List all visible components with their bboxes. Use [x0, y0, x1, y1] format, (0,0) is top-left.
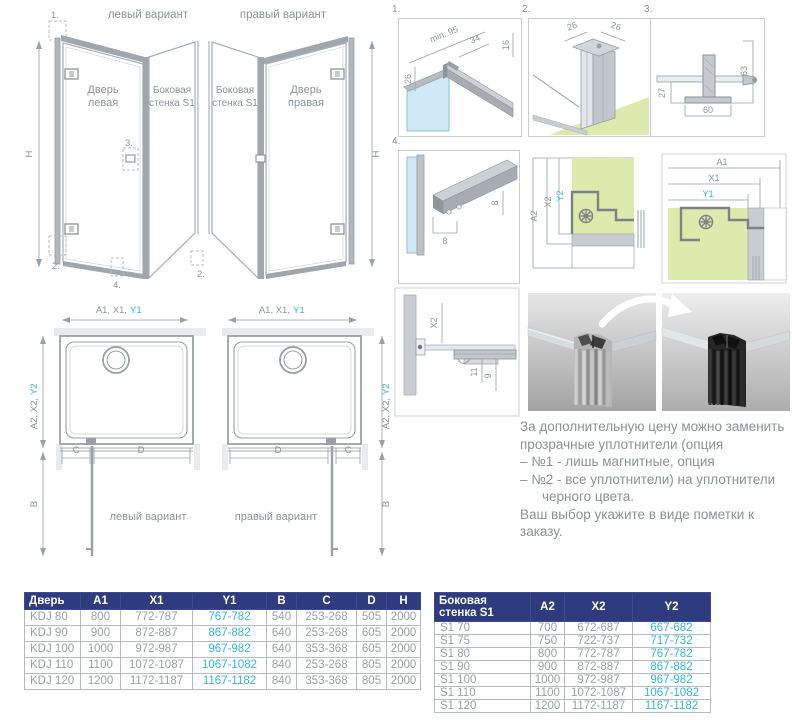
note-line: прозрачные уплотнители (опция — [520, 436, 792, 454]
table-cell: S1 90 — [435, 661, 531, 674]
table-cell: 2000 — [387, 674, 421, 690]
table-row: S1 90900872-887867-882 — [435, 661, 711, 674]
table-cell: 800 — [81, 610, 121, 626]
marker-3-label: 3. — [125, 138, 133, 149]
side-wall-label: стенка S1 — [212, 98, 258, 109]
table-cell: 840 — [267, 674, 297, 690]
table-cell: 867-882 — [633, 661, 711, 674]
table-cell: 253-268 — [297, 658, 357, 674]
table-cell: S1 80 — [435, 648, 531, 661]
table-cell: 1072-1087 — [565, 687, 633, 700]
dim-label: Y2 — [29, 383, 40, 395]
table-cell: KDJ 80 — [25, 610, 81, 626]
note-line: – №2 - все уплотнители) на уплотнители — [520, 471, 792, 489]
table-cell: 640 — [267, 626, 297, 642]
detail-1-number: 1. — [392, 4, 400, 15]
wall-table-header: Боковая стенка S1A2X2Y2 — [435, 593, 711, 622]
table-cell: 505 — [357, 610, 387, 626]
table-cell: 1100 — [81, 658, 121, 674]
dim-label: A1, X1, — [96, 305, 127, 316]
corner-detail-left: A2 X2 Y2 — [526, 152, 658, 285]
table-cell: 1172-1187 — [565, 700, 633, 713]
table-cell: 605 — [357, 626, 387, 642]
table-cell: 353-368 — [297, 642, 357, 658]
shower-tray — [60, 336, 193, 451]
elevation-right-variant: правый вариант Боковая стенка S1 Дверь п… — [200, 5, 385, 290]
table-cell: 540 — [267, 610, 297, 626]
seal-extrusion-streaks — [576, 349, 608, 405]
table-row: S1 80800772-787767-782 — [435, 648, 711, 661]
table-cell: 1172-1187 — [121, 674, 193, 690]
table-cell: KDJ 100 — [25, 642, 81, 658]
side-wall-label: Боковая — [153, 85, 191, 96]
detail-4-box: 8 8 — [398, 150, 520, 284]
table-cell: 1067-1082 — [193, 658, 267, 674]
dim-label: B — [29, 501, 40, 507]
table-row: S1 70700672-687667-682 — [435, 622, 711, 635]
column-header: B — [267, 593, 297, 610]
table-cell: 2000 — [387, 642, 421, 658]
table-cell: 967-982 — [193, 642, 267, 658]
dim-label: 8 — [490, 200, 500, 205]
table-cell: 722-737 — [565, 635, 633, 648]
dim-label: 27 — [657, 88, 667, 98]
replace-arrow-icon — [598, 290, 694, 330]
top-dimension: A1, X1, Y1 — [228, 305, 357, 323]
plan-left-variant: A1, X1, Y1 C D — [28, 298, 218, 563]
table-cell: 772-787 — [121, 610, 193, 626]
dim-label: X2 — [429, 317, 439, 328]
bracket-icon — [126, 155, 135, 162]
door-label: левая — [88, 97, 118, 109]
table-cell: S1 70 — [435, 622, 531, 635]
h-dimension: H — [369, 41, 382, 267]
detail-3-box: 63 27 60 — [650, 18, 765, 137]
adjustment-screw-icon — [700, 216, 713, 229]
side-wall-label: Боковая — [216, 85, 254, 96]
dim-label: 26 — [610, 20, 623, 33]
table-cell: 672-687 — [565, 622, 633, 635]
table-cell: KDJ 90 — [25, 626, 81, 642]
table-cell: 1167-1182 — [193, 674, 267, 690]
dim-label: 63 — [739, 66, 749, 76]
column-header: C — [297, 593, 357, 610]
side-dimensions: A2, X2, Y2 B — [379, 336, 392, 556]
dim-label: C — [345, 445, 352, 456]
table-cell: 1167-1182 — [633, 700, 711, 713]
adjustment-screw-icon — [580, 210, 593, 223]
detail-2-drawing: 26 26 — [529, 19, 651, 136]
table-cell: 972-987 — [565, 674, 633, 687]
dim-label: min. 95 — [428, 24, 459, 44]
door-label: правая — [288, 97, 324, 109]
table-cell: 1000 — [531, 674, 565, 687]
column-header: X2 — [565, 593, 633, 622]
elevation-right-title: правый вариант — [240, 9, 327, 21]
note-line: черного цвета. — [520, 488, 792, 506]
column-header: Боковая стенка S1 — [435, 593, 531, 622]
table-cell: 2000 — [387, 626, 421, 642]
door-pivot-icon — [326, 438, 336, 445]
note-line: За дополнительную цену можно заменить — [520, 418, 792, 436]
door-dimensions-table: ДверьA1X1Y1BCDH KDJ 80800772-787767-7825… — [24, 592, 421, 690]
table-cell: 867-882 — [193, 626, 267, 642]
detail-2-number: 2. — [522, 4, 530, 15]
table-cell: 700 — [531, 622, 565, 635]
marker-4-label: 4. — [113, 280, 121, 291]
table-cell: 805 — [357, 658, 387, 674]
corner-detail-right: A1 X1 Y1 — [660, 152, 788, 285]
table-row: S1 11011001072-10871067-1082 — [435, 687, 711, 700]
column-header: H — [387, 593, 421, 610]
detail-1-box: min. 95 34 16 26 — [398, 18, 522, 137]
detail-3-drawing: 63 27 60 — [651, 19, 764, 136]
table-cell: 967-982 — [633, 674, 711, 687]
table-cell: 1100 — [531, 687, 565, 700]
table-cell: 2000 — [387, 658, 421, 674]
dim-label: 8 — [442, 236, 447, 246]
column-header: Y2 — [633, 593, 711, 622]
door-table-body: KDJ 80800772-787767-782540253-2685052000… — [25, 610, 421, 690]
dim-label: Y1 — [293, 305, 305, 316]
dim-label: 26 — [566, 20, 579, 33]
door-pivot-icon — [86, 438, 96, 445]
right-door-drawing: Боковая стенка S1 Дверь правая — [209, 36, 354, 279]
column-header: X1 — [121, 593, 193, 610]
table-row: S1 75750722-737717-732 — [435, 635, 711, 648]
dim-label: X2 — [543, 196, 553, 207]
table-row: KDJ 90900872-887867-882640253-2686052000 — [25, 626, 421, 642]
dim-label: Y2 — [381, 383, 392, 395]
table-cell: 972-987 — [121, 642, 193, 658]
dim-label: A2 — [529, 210, 539, 221]
note-line: Ваш выбор укажите в виде пометки к заказ… — [520, 506, 792, 541]
column-header: A2 — [531, 593, 565, 622]
table-cell: 767-782 — [633, 648, 711, 661]
seal-extrusion-streaks — [710, 349, 742, 405]
table-cell: 1200 — [81, 674, 121, 690]
h-dimension: H — [24, 41, 42, 267]
table-cell: S1 100 — [435, 674, 531, 687]
side-wall-dimensions-table: Боковая стенка S1A2X2Y2 S1 70700672-6876… — [434, 592, 711, 713]
table-cell: S1 75 — [435, 635, 531, 648]
table-cell: 1072-1087 — [121, 658, 193, 674]
column-header: Y1 — [193, 593, 267, 610]
table-cell: 353-368 — [297, 674, 357, 690]
detail-3-number: 3. — [644, 4, 652, 15]
table-cell: 750 — [531, 635, 565, 648]
dim-label: D — [275, 445, 282, 456]
top-dimension: A1, X1, Y1 — [62, 305, 188, 323]
door-label: Дверь — [87, 84, 118, 96]
table-cell: 872-887 — [565, 661, 633, 674]
door-label: Дверь — [290, 84, 321, 96]
detail-1-drawing: min. 95 34 16 26 — [399, 19, 521, 136]
table-cell: 800 — [531, 648, 565, 661]
table-cell: 840 — [267, 658, 297, 674]
plan-right-variant: A1, X1, Y1 D C — [212, 298, 402, 563]
open-door — [332, 446, 338, 556]
dim-label: X1 — [708, 173, 719, 183]
side-dimensions: A2, X2, Y2 B — [29, 336, 46, 556]
detail-4-number: 4. — [392, 136, 400, 147]
marker-2-label: 2. — [52, 261, 60, 272]
wall-section-detail: X2 11 9 — [394, 287, 520, 417]
table-row: KDJ 12012001172-11871167-1182840353-3688… — [25, 674, 421, 690]
bracket-icon — [256, 155, 265, 162]
table-cell: 872-887 — [121, 626, 193, 642]
detail-4-drawing: 8 8 — [399, 151, 519, 283]
table-cell: 253-268 — [297, 626, 357, 642]
h-dim-label: H — [24, 150, 35, 157]
table-cell: 772-787 — [565, 648, 633, 661]
table-cell: 667-682 — [633, 622, 711, 635]
table-cell: 1200 — [531, 700, 565, 713]
dim-label: B — [381, 501, 392, 507]
dim-label: A2, X2, — [29, 398, 40, 429]
dim-label: D — [138, 445, 145, 456]
dim-label: A1, X1, — [259, 305, 290, 316]
table-cell: 605 — [357, 642, 387, 658]
dim-label: Y2 — [555, 190, 565, 201]
side-wall-label: стенка S1 — [149, 98, 195, 109]
dim-label: 11 — [469, 367, 479, 376]
shower-enclosure-spec-sheet: левый вариант H Дверь левая Боковая стен… — [0, 0, 792, 720]
table-cell: 1000 — [81, 642, 121, 658]
dim-label: 26 — [403, 74, 413, 84]
dim-label: C — [73, 445, 80, 456]
dim-label: A1 — [716, 157, 727, 167]
dim-label: 9 — [483, 373, 493, 378]
table-cell: S1 120 — [435, 700, 531, 713]
table-cell: KDJ 110 — [25, 658, 81, 674]
table-cell: 1067-1082 — [633, 687, 711, 700]
table-row: KDJ 80800772-787767-782540253-2685052000 — [25, 610, 421, 626]
plan-left-caption: левый вариант — [110, 511, 187, 523]
table-cell: 805 — [357, 674, 387, 690]
dim-label: Y1 — [702, 189, 713, 199]
dim-label: 16 — [501, 40, 511, 50]
table-cell: 717-732 — [633, 635, 711, 648]
elevation-left-title: левый вариант — [108, 9, 189, 21]
table-row: S1 12012001172-11871167-1182 — [435, 700, 711, 713]
table-cell: 2000 — [387, 610, 421, 626]
table-cell: 640 — [267, 642, 297, 658]
plan-right-caption: правый вариант — [235, 511, 317, 523]
table-cell: 900 — [81, 626, 121, 642]
table-row: KDJ 1001000972-987967-982640353-36860520… — [25, 642, 421, 658]
table-cell: KDJ 120 — [25, 674, 81, 690]
wall-table-body: S1 70700672-687667-682S1 75750722-737717… — [435, 622, 711, 713]
column-header: Дверь — [25, 593, 81, 610]
open-door — [86, 446, 92, 556]
elevation-left-variant: левый вариант H Дверь левая Боковая стен… — [25, 5, 210, 290]
column-header: A1 — [81, 593, 121, 610]
h-dim-label: H — [371, 150, 382, 157]
table-cell: S1 110 — [435, 687, 531, 700]
door-table-header: ДверьA1X1Y1BCDH — [25, 593, 421, 610]
dim-label: 60 — [703, 105, 713, 115]
dim-label: A2, X2, — [381, 398, 392, 429]
column-header: D — [357, 593, 387, 610]
table-cell: 767-782 — [193, 610, 267, 626]
table-cell: 900 — [531, 661, 565, 674]
marker-1-label: 1. — [51, 10, 59, 21]
table-cell: 253-268 — [297, 610, 357, 626]
note-line: – №1 - лишь магнитные, опция — [520, 453, 792, 471]
shower-tray — [228, 336, 361, 451]
table-row: KDJ 11011001072-10871067-1082840253-2688… — [25, 658, 421, 674]
table-row: S1 1001000972-987967-982 — [435, 674, 711, 687]
dim-label: Y1 — [130, 305, 142, 316]
detail-2-box: 26 26 — [528, 18, 652, 137]
seal-replacement-note: За дополнительную цену можно заменить пр… — [520, 418, 792, 541]
